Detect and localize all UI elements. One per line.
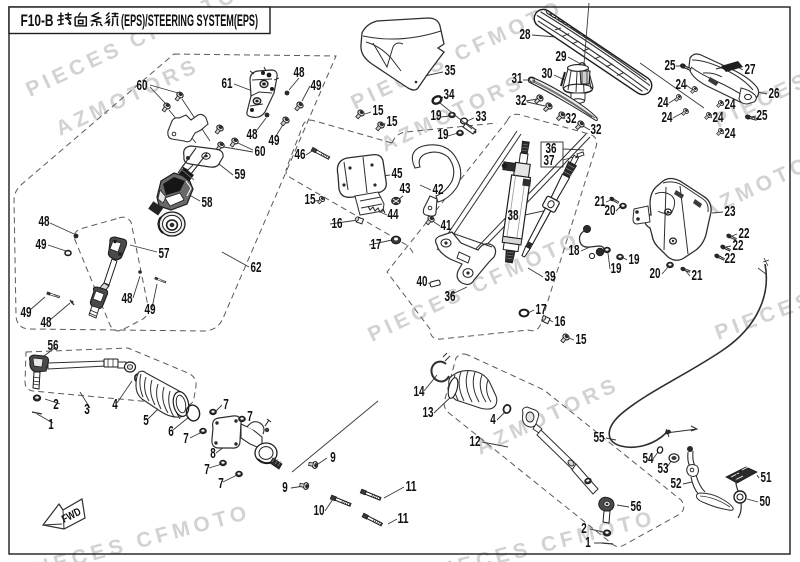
svg-text:17: 17 (371, 236, 382, 253)
svg-text:49: 49 (145, 301, 156, 318)
svg-text:51: 51 (761, 469, 772, 486)
svg-text:54: 54 (643, 450, 654, 467)
svg-text:13: 13 (423, 404, 434, 421)
svg-text:44: 44 (388, 206, 399, 223)
svg-text:49: 49 (269, 132, 280, 149)
svg-text:1: 1 (585, 534, 591, 551)
svg-text:27: 27 (745, 61, 756, 78)
svg-text:24: 24 (662, 109, 673, 126)
svg-text:8: 8 (210, 445, 216, 462)
svg-text:24: 24 (725, 125, 736, 142)
svg-text:6: 6 (168, 423, 174, 440)
svg-text:25: 25 (757, 107, 768, 124)
svg-text:19: 19 (629, 251, 640, 268)
svg-text:21: 21 (692, 267, 703, 284)
svg-text:50: 50 (760, 493, 771, 510)
svg-text:30: 30 (542, 65, 553, 82)
svg-text:12: 12 (470, 433, 481, 450)
svg-text:(EPS)/STEERING SYSTEM(EPS): (EPS)/STEERING SYSTEM(EPS) (121, 11, 258, 30)
svg-text:40: 40 (417, 273, 428, 290)
svg-text:2: 2 (53, 396, 59, 413)
svg-text:5: 5 (143, 412, 149, 429)
svg-text:53: 53 (658, 460, 669, 477)
svg-text:20: 20 (605, 202, 616, 219)
svg-text:11: 11 (406, 478, 417, 495)
svg-text:55: 55 (594, 429, 605, 446)
svg-text:49: 49 (36, 236, 47, 253)
svg-text:33: 33 (476, 108, 487, 125)
svg-text:25: 25 (665, 57, 676, 74)
svg-text:62: 62 (251, 259, 262, 276)
svg-text:34: 34 (444, 86, 455, 103)
svg-text:31: 31 (512, 70, 523, 87)
svg-text:48: 48 (39, 213, 50, 230)
svg-text:57: 57 (159, 245, 170, 262)
svg-text:32: 32 (566, 110, 577, 127)
svg-text:60: 60 (137, 77, 148, 94)
svg-text:15: 15 (576, 331, 587, 348)
svg-text:4: 4 (112, 396, 118, 413)
svg-text:49: 49 (21, 304, 32, 321)
svg-text:15: 15 (373, 102, 384, 119)
svg-text:9: 9 (282, 479, 288, 496)
svg-text:20: 20 (650, 265, 661, 282)
svg-text:26: 26 (769, 85, 780, 102)
svg-text:16: 16 (555, 313, 566, 330)
svg-text:28: 28 (520, 26, 531, 43)
svg-text:52: 52 (671, 475, 682, 492)
svg-text:23: 23 (725, 203, 736, 220)
svg-text:32: 32 (516, 92, 527, 109)
svg-text:19: 19 (431, 107, 442, 124)
svg-text:42: 42 (433, 181, 444, 198)
svg-text:41: 41 (441, 217, 452, 234)
svg-text:24: 24 (676, 76, 687, 93)
svg-text:43: 43 (400, 180, 411, 197)
svg-text:24: 24 (713, 109, 724, 126)
svg-text:18: 18 (569, 242, 580, 259)
svg-text:56: 56 (631, 498, 642, 515)
svg-text:35: 35 (445, 62, 456, 79)
svg-text:1: 1 (48, 416, 54, 433)
svg-text:59: 59 (235, 166, 246, 183)
svg-text:14: 14 (414, 383, 425, 400)
svg-text:49: 49 (311, 77, 322, 94)
svg-text:32: 32 (591, 121, 602, 138)
svg-text:7: 7 (204, 461, 210, 478)
svg-text:11: 11 (398, 510, 409, 527)
svg-text:22: 22 (725, 250, 736, 267)
svg-text:58: 58 (202, 194, 213, 211)
svg-text:36: 36 (445, 288, 456, 305)
svg-text:7: 7 (223, 396, 229, 413)
svg-text:60: 60 (255, 143, 266, 160)
svg-text:F10-B: F10-B (21, 11, 54, 30)
svg-text:48: 48 (122, 290, 133, 307)
svg-text:19: 19 (438, 126, 449, 143)
svg-text:7: 7 (218, 475, 224, 492)
svg-text:61: 61 (222, 75, 233, 92)
svg-text:29: 29 (556, 48, 567, 65)
svg-text:37: 37 (544, 152, 555, 169)
svg-text:9: 9 (330, 449, 336, 466)
svg-text:46: 46 (295, 146, 306, 163)
svg-text:48: 48 (247, 126, 258, 143)
svg-text:4: 4 (490, 411, 496, 428)
svg-text:38: 38 (508, 207, 519, 224)
svg-text:10: 10 (314, 502, 325, 519)
svg-text:48: 48 (41, 314, 52, 331)
svg-text:39: 39 (545, 268, 556, 285)
svg-text:15: 15 (305, 191, 316, 208)
svg-text:56: 56 (48, 337, 59, 354)
svg-text:16: 16 (332, 215, 343, 232)
svg-text:48: 48 (294, 64, 305, 81)
svg-text:7: 7 (247, 408, 253, 425)
svg-text:17: 17 (536, 301, 547, 318)
svg-text:3: 3 (84, 401, 90, 418)
svg-text:7: 7 (183, 430, 189, 447)
svg-text:19: 19 (611, 260, 622, 277)
svg-text:15: 15 (387, 113, 398, 130)
svg-text:24: 24 (725, 96, 736, 113)
